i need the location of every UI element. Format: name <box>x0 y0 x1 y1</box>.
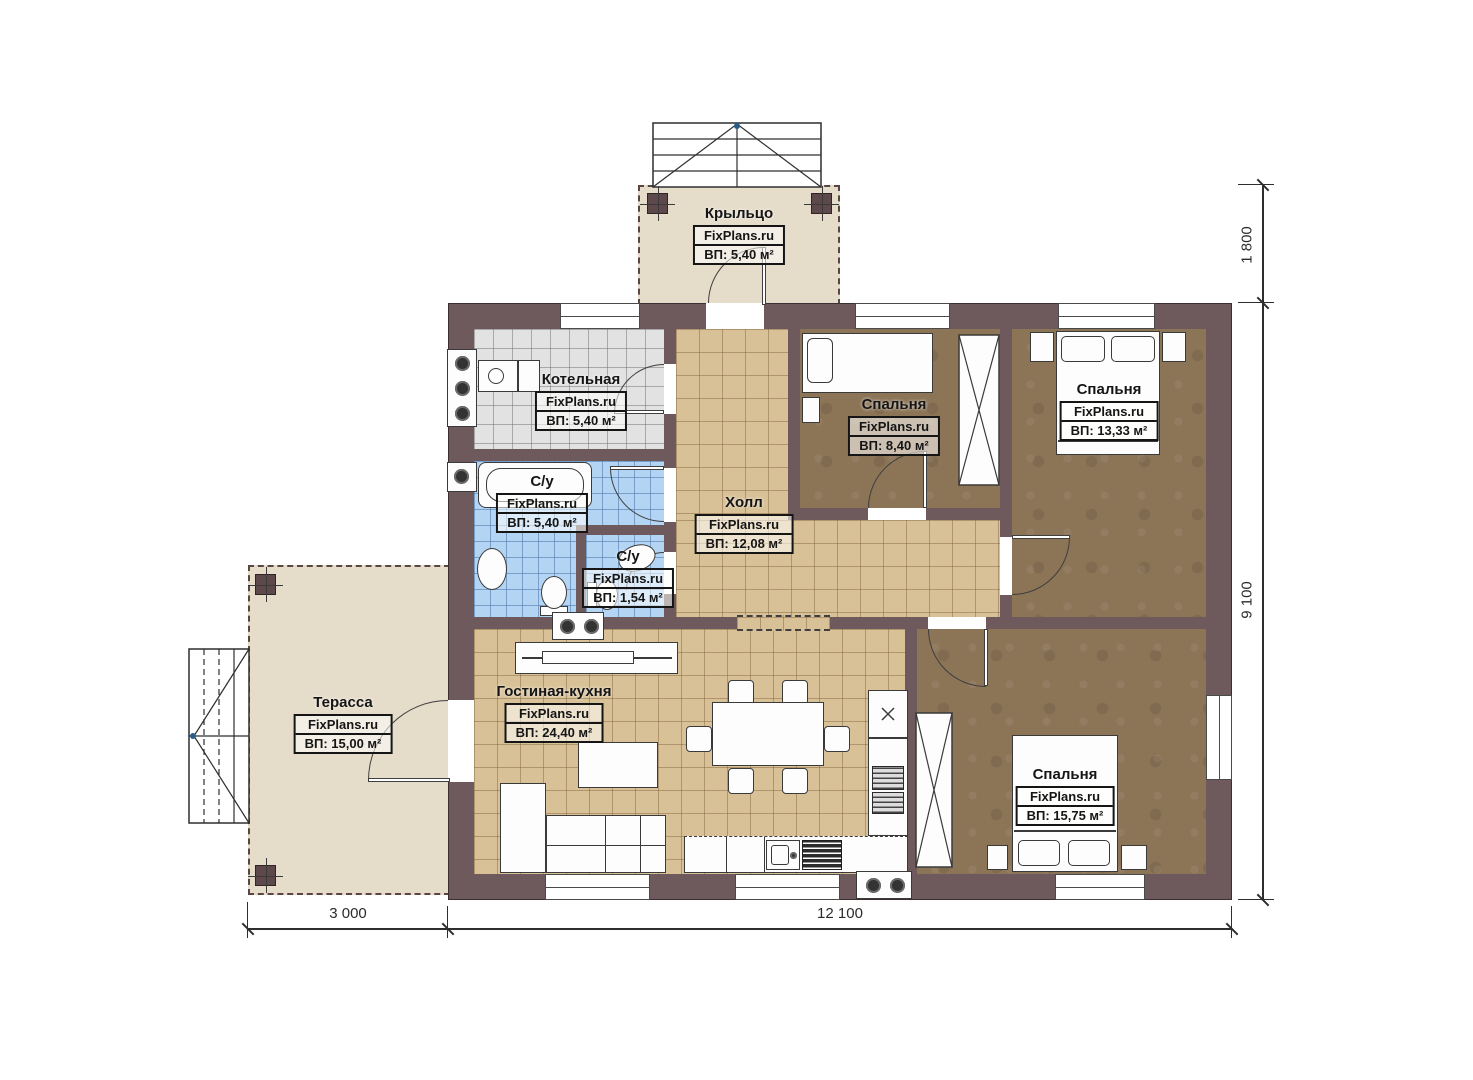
dimension-extension <box>1238 899 1274 900</box>
room-name: Спальня <box>1033 766 1098 783</box>
water-heater-pipe-icon <box>454 469 469 484</box>
room-name: Терасса <box>313 694 372 711</box>
boiler-pipe-icon <box>455 406 470 421</box>
counter-divider <box>764 837 765 872</box>
pillow <box>1061 336 1105 362</box>
door-leaf <box>1012 535 1070 539</box>
terrace-post <box>255 574 276 595</box>
porch-post <box>811 193 832 214</box>
brand-watermark: FixPlans.ru <box>1018 788 1113 807</box>
label-box: FixPlans.ru ВП: 15,00 м² <box>294 714 393 754</box>
room-label-hall: Холл FixPlans.ru ВП: 12,08 м² <box>695 494 794 554</box>
label-box: FixPlans.ru ВП: 5,40 м² <box>535 391 627 431</box>
sofa-seam <box>605 816 606 872</box>
stove-icon <box>872 792 904 814</box>
wardrobe-icon <box>915 712 953 868</box>
dining-table <box>712 702 824 766</box>
bed-footline <box>1014 830 1116 832</box>
dimension-extension <box>1231 906 1232 938</box>
stove-icon <box>872 766 904 790</box>
dimension-extension <box>1238 184 1274 185</box>
brand-watermark: FixPlans.ru <box>296 716 391 735</box>
dishwasher-icon <box>802 840 842 870</box>
room-area: ВП: 15,00 м² <box>296 735 391 752</box>
window <box>735 874 840 900</box>
dimension-label-porch-depth: 1 800 <box>1239 226 1256 264</box>
room-label-porch: Крыльцо FixPlans.ru ВП: 5,40 м² <box>693 205 785 265</box>
room-name: Крыльцо <box>705 205 773 222</box>
door-opening-entrance <box>706 303 764 329</box>
label-box: FixPlans.ru ВП: 1,54 м² <box>582 568 674 608</box>
dimension-line <box>1262 185 1264 900</box>
wardrobe-icon <box>958 334 1000 486</box>
kitchen-sink-bowl <box>771 845 789 865</box>
door-leaf <box>368 778 450 782</box>
room-area: ВП: 1,54 м² <box>584 589 672 606</box>
sofa-icon <box>500 783 546 873</box>
chair <box>782 768 808 794</box>
nightstand <box>1162 332 1186 362</box>
vent-pipe-icon <box>560 619 575 634</box>
window <box>545 874 650 900</box>
label-box: FixPlans.ru ВП: 5,40 м² <box>693 225 785 265</box>
window <box>1058 303 1155 329</box>
room-area: ВП: 15,75 м² <box>1018 807 1113 824</box>
door-opening-bedroom2 <box>1000 537 1012 595</box>
counter-divider <box>726 837 727 872</box>
room-area: ВП: 5,40 м² <box>498 514 586 531</box>
toilet-icon <box>541 576 567 609</box>
dimension-label-terrace-width: 3 000 <box>329 905 367 922</box>
room-name: Котельная <box>542 371 621 388</box>
window <box>1206 695 1232 780</box>
sink-icon <box>488 368 504 384</box>
room-area: ВП: 12,08 м² <box>697 535 792 552</box>
nightstand <box>987 845 1008 870</box>
brand-watermark: FixPlans.ru <box>697 516 792 535</box>
window <box>1055 874 1145 900</box>
label-box: FixPlans.ru ВП: 24,40 м² <box>505 703 604 743</box>
bath-sink-icon <box>477 548 507 590</box>
faucet-icon <box>790 852 797 859</box>
passage-opening <box>737 615 830 631</box>
room-name: Холл <box>725 494 763 511</box>
boiler-pipe-icon <box>455 356 470 371</box>
pillow <box>1068 840 1110 866</box>
cross-mark-icon <box>880 706 896 722</box>
brand-watermark: FixPlans.ru <box>695 227 783 246</box>
vent-pipe-icon <box>584 619 599 634</box>
wc-wall-horizontal <box>576 525 664 535</box>
floor-plan-canvas: Крыльцо FixPlans.ru ВП: 5,40 м² Котельна… <box>0 0 1473 1080</box>
label-box: FixPlans.ru ВП: 5,40 м² <box>496 493 588 533</box>
room-area: ВП: 5,40 м² <box>537 412 625 429</box>
boiler-pipe-icon <box>455 381 470 396</box>
label-box: FixPlans.ru ВП: 12,08 м² <box>695 514 794 554</box>
chair <box>824 726 850 752</box>
vent-pipe-icon <box>890 878 905 893</box>
dimension-line <box>248 928 1232 930</box>
room-area: ВП: 5,40 м² <box>695 246 783 263</box>
door-opening-terrace <box>448 700 474 782</box>
porch-steps-icon <box>652 122 822 188</box>
nightstand <box>802 397 820 423</box>
window <box>855 303 950 329</box>
room-label-wc: С/у FixPlans.ru ВП: 1,54 м² <box>582 548 674 608</box>
room-name: С/у <box>530 473 553 490</box>
pillow <box>807 338 833 383</box>
counter-divider <box>517 361 519 391</box>
pillow <box>1018 840 1060 866</box>
door-opening-bedroom1 <box>868 508 926 520</box>
tv-icon <box>542 651 634 664</box>
dimension-label-house-height: 9 100 <box>1239 581 1256 619</box>
vent-pipe-icon <box>866 878 881 893</box>
sofa-seam <box>546 845 666 846</box>
nightstand <box>1030 332 1054 362</box>
door-leaf <box>923 451 927 508</box>
room-label-bedroom3: Спальня FixPlans.ru ВП: 15,75 м² <box>1016 766 1115 826</box>
room-label-boiler: Котельная FixPlans.ru ВП: 5,40 м² <box>535 371 627 431</box>
room-label-bathroom: С/у FixPlans.ru ВП: 5,40 м² <box>496 473 588 533</box>
nightstand <box>1121 845 1147 870</box>
window <box>560 303 640 329</box>
coffee-table <box>578 742 658 788</box>
dimension-extension <box>447 906 448 938</box>
brand-watermark: FixPlans.ru <box>850 418 938 437</box>
terrace-steps-icon <box>188 648 250 824</box>
dimension-extension <box>1238 302 1274 303</box>
room-label-bedroom2: Спальня FixPlans.ru ВП: 13,33 м² <box>1060 381 1159 441</box>
label-box: FixPlans.ru ВП: 15,75 м² <box>1016 786 1115 826</box>
brand-watermark: FixPlans.ru <box>537 393 625 412</box>
brand-watermark: FixPlans.ru <box>584 570 672 589</box>
room-label-living: Гостиная-кухня FixPlans.ru ВП: 24,40 м² <box>497 683 612 743</box>
brand-watermark: FixPlans.ru <box>507 705 602 724</box>
room-area: ВП: 13,33 м² <box>1062 422 1157 439</box>
sofa-seam <box>640 816 641 872</box>
terrace-post <box>255 865 276 886</box>
room-area: ВП: 8,40 м² <box>850 437 938 454</box>
room-area: ВП: 24,40 м² <box>507 724 602 741</box>
door-opening-boiler <box>664 364 676 414</box>
pillow <box>1111 336 1155 362</box>
room-name: Спальня <box>862 396 927 413</box>
chair <box>728 768 754 794</box>
door-leaf <box>610 466 664 470</box>
room-label-terrace: Терасса FixPlans.ru ВП: 15,00 м² <box>294 694 393 754</box>
brand-watermark: FixPlans.ru <box>498 495 586 514</box>
sofa-icon <box>546 815 666 873</box>
dimension-extension <box>247 902 248 938</box>
door-opening-bathroom <box>664 468 676 522</box>
label-box: FixPlans.ru ВП: 13,33 м² <box>1060 401 1159 441</box>
room-name: Гостиная-кухня <box>497 683 612 700</box>
room-name: Спальня <box>1077 381 1142 398</box>
door-opening-bedroom3 <box>928 617 986 629</box>
label-box: FixPlans.ru ВП: 8,40 м² <box>848 416 940 456</box>
chair <box>686 726 712 752</box>
room-label-bedroom1: Спальня FixPlans.ru ВП: 8,40 м² <box>848 396 940 456</box>
porch-post <box>647 193 668 214</box>
dimension-label-house-width: 12 100 <box>817 905 863 922</box>
room-name: С/у <box>616 548 639 565</box>
door-leaf <box>984 629 988 686</box>
brand-watermark: FixPlans.ru <box>1062 403 1157 422</box>
